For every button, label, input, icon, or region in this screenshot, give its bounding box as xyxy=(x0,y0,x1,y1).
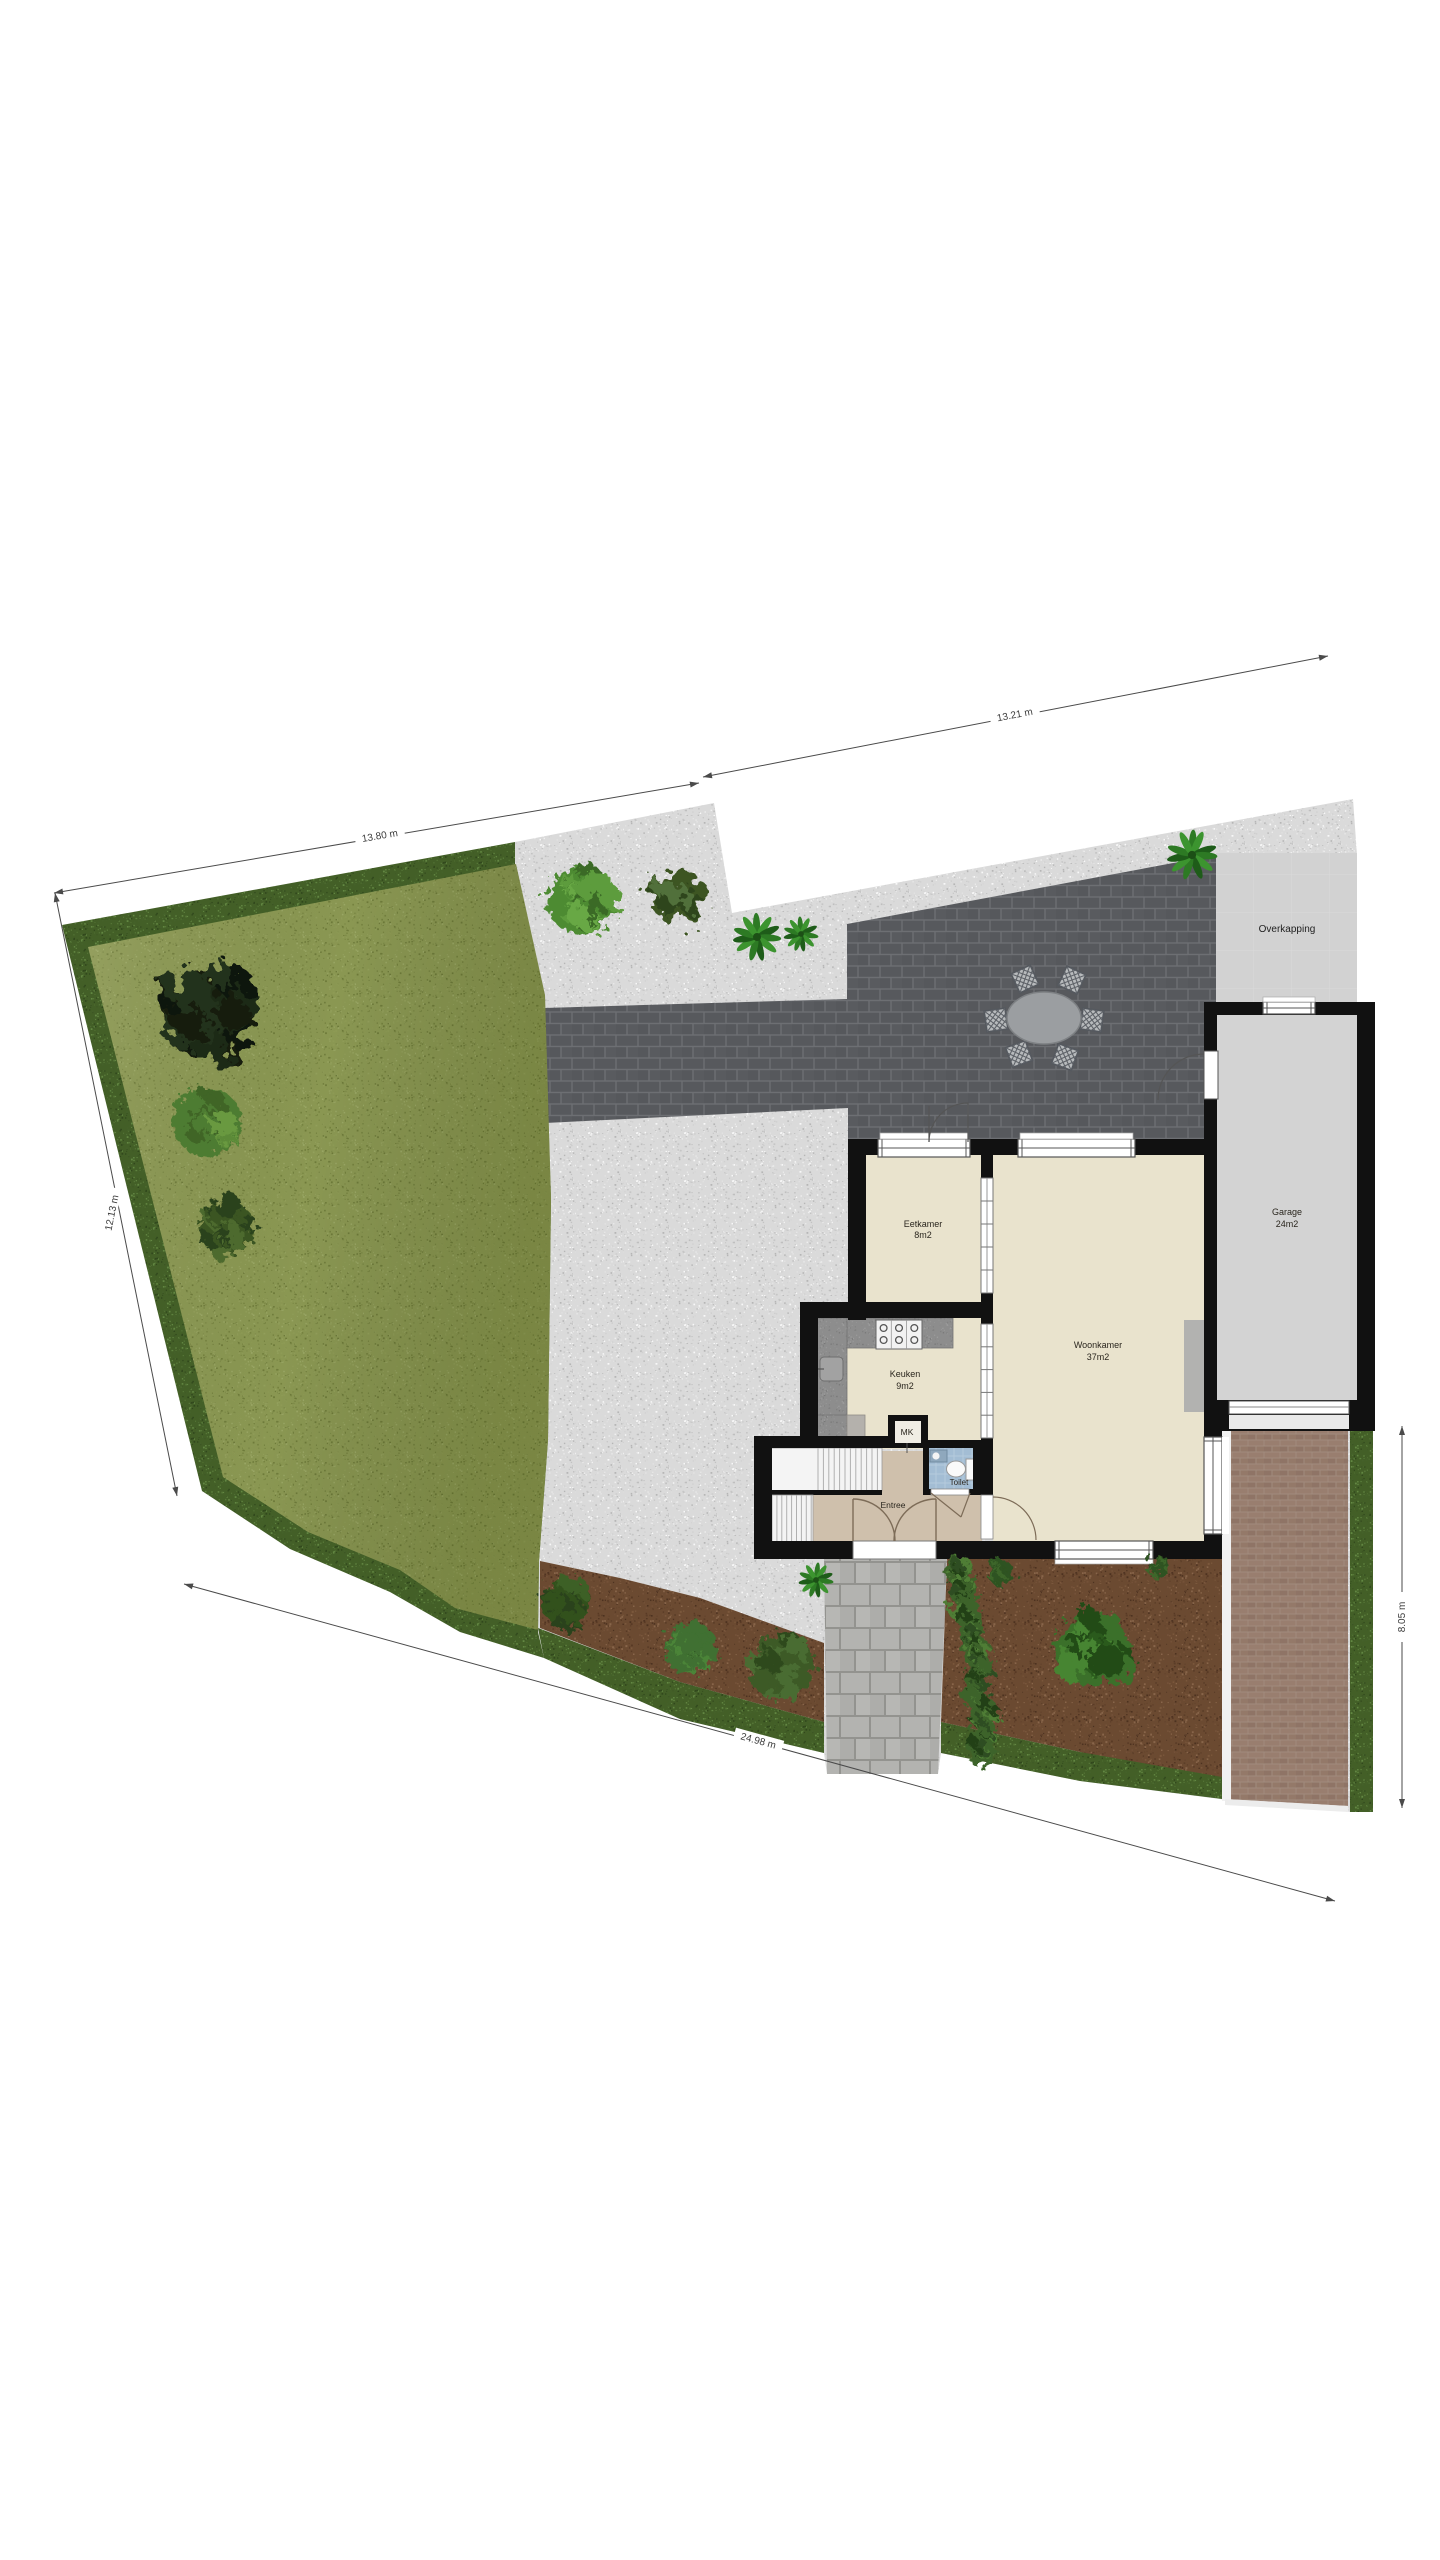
svg-text:Entree: Entree xyxy=(880,1500,905,1510)
svg-text:24m2: 24m2 xyxy=(1276,1219,1299,1229)
svg-text:Keuken: Keuken xyxy=(890,1369,921,1379)
svg-text:Overkapping: Overkapping xyxy=(1259,924,1316,935)
svg-text:8.05 m: 8.05 m xyxy=(1397,1602,1408,1633)
svg-text:Toilet: Toilet xyxy=(950,1478,969,1487)
svg-text:9m2: 9m2 xyxy=(896,1381,914,1391)
svg-text:8m2: 8m2 xyxy=(914,1230,932,1240)
svg-text:Garage: Garage xyxy=(1272,1207,1302,1217)
svg-text:Eetkamer: Eetkamer xyxy=(904,1219,943,1229)
svg-text:37m2: 37m2 xyxy=(1087,1352,1110,1362)
svg-text:MK: MK xyxy=(901,1427,914,1437)
svg-text:Woonkamer: Woonkamer xyxy=(1074,1340,1122,1350)
